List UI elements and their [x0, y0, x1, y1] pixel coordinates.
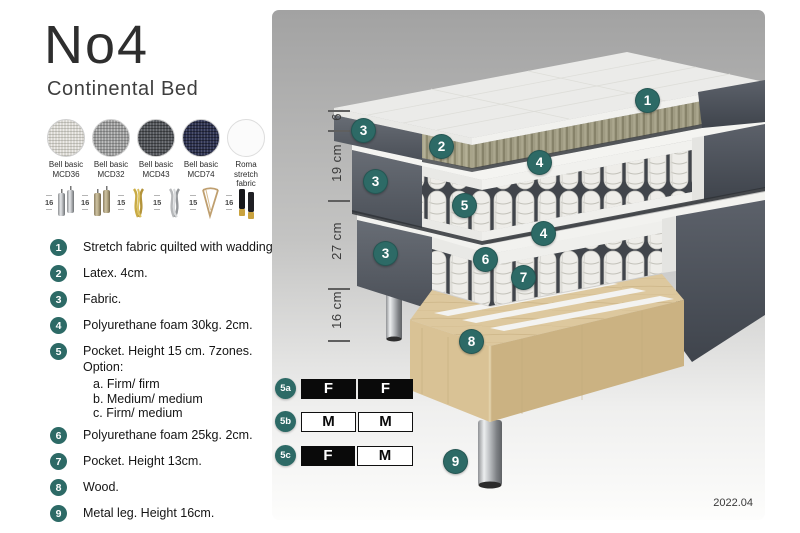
fabric-name: Roma	[235, 160, 256, 169]
dimension-tick	[328, 130, 350, 132]
firmness-cell: F	[301, 446, 355, 466]
diagram-badge-3: 3	[351, 118, 376, 143]
fabric-swatch: Bell basicMCD36	[45, 119, 87, 189]
diagram-badge-7: 7	[511, 265, 536, 290]
version-label: 2022.04	[713, 497, 753, 509]
list-text: Pocket. Height 15 cm. 7zones. Option:	[83, 343, 280, 375]
diagram-badge-9: 9	[443, 449, 468, 474]
list-text: Metal leg. Height 16cm.	[83, 505, 214, 522]
leg-height: 16	[45, 196, 53, 209]
fabric-name: Bell basic	[184, 160, 218, 169]
diagram-badge-8: 8	[459, 329, 484, 354]
firmness-cell: F	[301, 379, 356, 399]
firmness-bar-5c: F M	[301, 446, 413, 466]
firmness-option-5b: 5b M M	[275, 411, 413, 432]
dimension-label-6: 6	[329, 113, 344, 121]
firmness-option-5c: 5c F M	[275, 445, 413, 466]
dimension-tick	[328, 340, 350, 342]
diagram-badge-6: 6	[473, 247, 498, 272]
firmness-cell: M	[358, 412, 413, 432]
fabric-swatch: Romastretch fabric	[225, 119, 267, 189]
dimension-label-27cm: 27 cm	[329, 222, 344, 260]
list-item: 5 Pocket. Height 15 cm. 7zones. Option:	[50, 343, 280, 375]
fabric-swatch-image	[92, 119, 130, 157]
pocket-option-a: a. Firm/ firm	[93, 378, 280, 391]
leg-option-cylinder-black-gold: 16	[225, 184, 259, 220]
list-badge-5: 5	[50, 343, 67, 360]
leg-icon	[234, 184, 258, 220]
dimension-label-19cm: 19 cm	[329, 144, 344, 182]
product-sheet: No4 Continental Bed Bell basicMCD36 Bell…	[0, 0, 800, 533]
fabric-code: MCD32	[97, 170, 124, 179]
list-item: 4 Polyurethane foam 30kg. 2cm.	[50, 317, 280, 334]
leg-option-cylinder-brass: 16	[81, 184, 115, 220]
fabric-name: Bell basic	[139, 160, 173, 169]
diagram-badge-3b: 3	[363, 169, 388, 194]
list-text: Polyurethane foam 30kg. 2cm.	[83, 317, 253, 334]
fabric-swatch-image	[182, 119, 220, 157]
leg-icon	[54, 184, 78, 220]
fabric-swatch-image	[47, 119, 85, 157]
fabric-swatch: Bell basicMCD43	[135, 119, 177, 189]
list-item: 3 Fabric.	[50, 291, 280, 308]
fabric-name: Bell basic	[94, 160, 128, 169]
diagram-badge-1: 1	[635, 88, 660, 113]
firmness-cell: M	[301, 412, 356, 432]
leg-icon	[198, 184, 222, 220]
list-badge-4: 4	[50, 317, 67, 334]
list-item: 8 Wood.	[50, 479, 280, 496]
diagram-badge-3c: 3	[373, 241, 398, 266]
page-title: No4	[44, 14, 149, 76]
list-item: 2 Latex. 4cm.	[50, 265, 280, 282]
leg-option-hairpin: 15	[189, 184, 223, 220]
dimension-tick	[328, 288, 350, 290]
pocket-option-b: b. Medium/ medium	[93, 393, 280, 406]
leg-icon	[126, 184, 150, 220]
leg-options: 16 16 15 15	[45, 184, 260, 220]
list-item: 7 Pocket. Height 13cm.	[50, 453, 280, 470]
list-item: 6 Polyurethane foam 25kg. 2cm.	[50, 427, 280, 444]
list-text: Fabric.	[83, 291, 121, 308]
leg-height: 16	[225, 196, 233, 209]
dimension-tick	[328, 200, 350, 202]
leg-option-cylinder-silver: 16	[45, 184, 79, 220]
list-badge-7: 7	[50, 453, 67, 470]
pocket-option-c: c. Firm/ medium	[93, 407, 280, 420]
page-subtitle: Continental Bed	[47, 78, 198, 101]
list-badge-2: 2	[50, 265, 67, 282]
bed-cutaway-panel: 6 19 cm 27 cm 16 cm 1 2 3 4 5 4 3 6 7 3 …	[272, 10, 765, 520]
firmness-cell: M	[357, 446, 413, 466]
fabric-swatches: Bell basicMCD36 Bell basicMCD32 Bell bas…	[45, 119, 273, 189]
leg-icon	[90, 184, 114, 220]
diagram-badge-4b: 4	[531, 221, 556, 246]
list-badge-6: 6	[50, 427, 67, 444]
leg-height: 15	[189, 196, 197, 209]
firmness-badge-5c: 5c	[275, 445, 296, 466]
leg-height: 15	[153, 196, 161, 209]
fabric-name: Bell basic	[49, 160, 83, 169]
fabric-swatch: Bell basicMCD32	[90, 119, 132, 189]
firmness-option-5a: 5a F F	[275, 378, 413, 399]
firmness-cell: F	[358, 379, 413, 399]
fabric-code: MCD74	[187, 170, 214, 179]
list-badge-3: 3	[50, 291, 67, 308]
leg-option-twist-silver: 15	[153, 184, 187, 220]
leg-option-twist-gold: 15	[117, 184, 151, 220]
diagram-badge-5: 5	[452, 193, 477, 218]
list-badge-1: 1	[50, 239, 67, 256]
fabric-swatch-image	[227, 119, 265, 157]
list-text: Pocket. Height 13cm.	[83, 453, 202, 470]
fabric-swatch: Bell basicMCD74	[180, 119, 222, 189]
leg-icon	[162, 184, 186, 220]
fabric-code: MCD36	[52, 170, 79, 179]
list-badge-9: 9	[50, 505, 67, 522]
fabric-swatch-image	[137, 119, 175, 157]
firmness-badge-5a: 5a	[275, 378, 296, 399]
list-item: 9 Metal leg. Height 16cm.	[50, 505, 280, 522]
list-text: Polyurethane foam 25kg. 2cm.	[83, 427, 253, 444]
list-badge-8: 8	[50, 479, 67, 496]
diagram-badge-4: 4	[527, 150, 552, 175]
firmness-badge-5b: 5b	[275, 411, 296, 432]
list-item: 1 Stretch fabric quilted with wadding.	[50, 239, 280, 256]
leg-height: 15	[117, 196, 125, 209]
dimension-tick	[328, 110, 350, 112]
dimension-label-16cm: 16 cm	[329, 291, 344, 329]
firmness-bar-5b: M M	[301, 412, 413, 432]
pocket-options: a. Firm/ firm b. Medium/ medium c. Firm/…	[93, 378, 280, 420]
fabric-code: MCD43	[142, 170, 169, 179]
list-text: Wood.	[83, 479, 119, 496]
spec-list: 1 Stretch fabric quilted with wadding. 2…	[50, 239, 280, 531]
list-text: Latex. 4cm.	[83, 265, 148, 282]
leg-height: 16	[81, 196, 89, 209]
firmness-bar-5a: F F	[301, 379, 413, 399]
diagram-badge-2: 2	[429, 134, 454, 159]
list-text: Stretch fabric quilted with wadding.	[83, 239, 276, 256]
